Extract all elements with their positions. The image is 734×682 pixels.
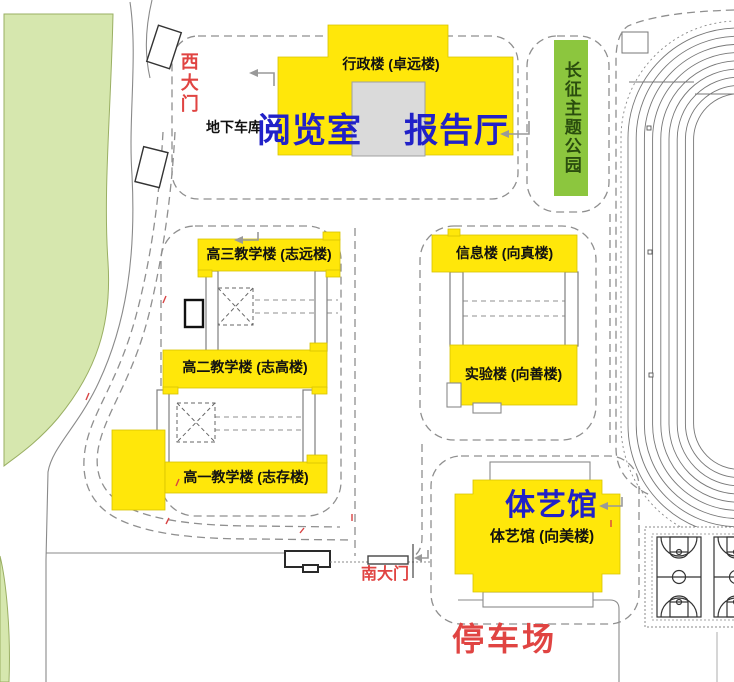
gym-building-label: 体艺馆 (向美楼) [478,528,606,545]
direction-arrow [249,69,274,86]
direction-arrow [414,550,428,562]
basketball-court [714,537,734,617]
theme-park: 长征主题公园 [554,40,588,196]
basketball-courts [645,527,734,627]
guard-house [285,551,330,572]
campus-map: 西大门 地下车库 行政楼 (卓远楼) 阅览室 报告厅 长征主题公园 高三教学楼 … [0,0,734,682]
stairwell-marker [185,300,203,327]
grade1-building-label: 高一教学楼 (志存楼) [165,469,327,485]
gym-label: 体艺馆 [505,489,598,524]
reading-room-label: 阅览室 [257,112,362,151]
info-building-label: 信息楼 (向真楼) [432,245,577,261]
grade3-building-label: 高三教学楼 (志远楼) [198,246,340,262]
lecture-hall-label: 报告厅 [404,112,509,151]
west-gate-label: 西大门 [178,52,199,115]
lab-building-label: 实验楼 (向善楼) [450,366,577,382]
south-gate-label: 南大门 [361,566,409,584]
grade2-building-label: 高二教学楼 (志高楼) [163,359,327,375]
theme-park-label: 长征主题公园 [561,61,581,175]
west-gate-marker [135,25,181,187]
basketball-court [657,537,701,617]
admin-building-label: 行政楼 (卓远楼) [310,56,472,72]
lawn-area [0,14,113,682]
parking-lot-label: 停车场 [452,621,557,658]
underground-garage-label: 地下车库 [205,119,263,135]
running-track [621,21,734,542]
